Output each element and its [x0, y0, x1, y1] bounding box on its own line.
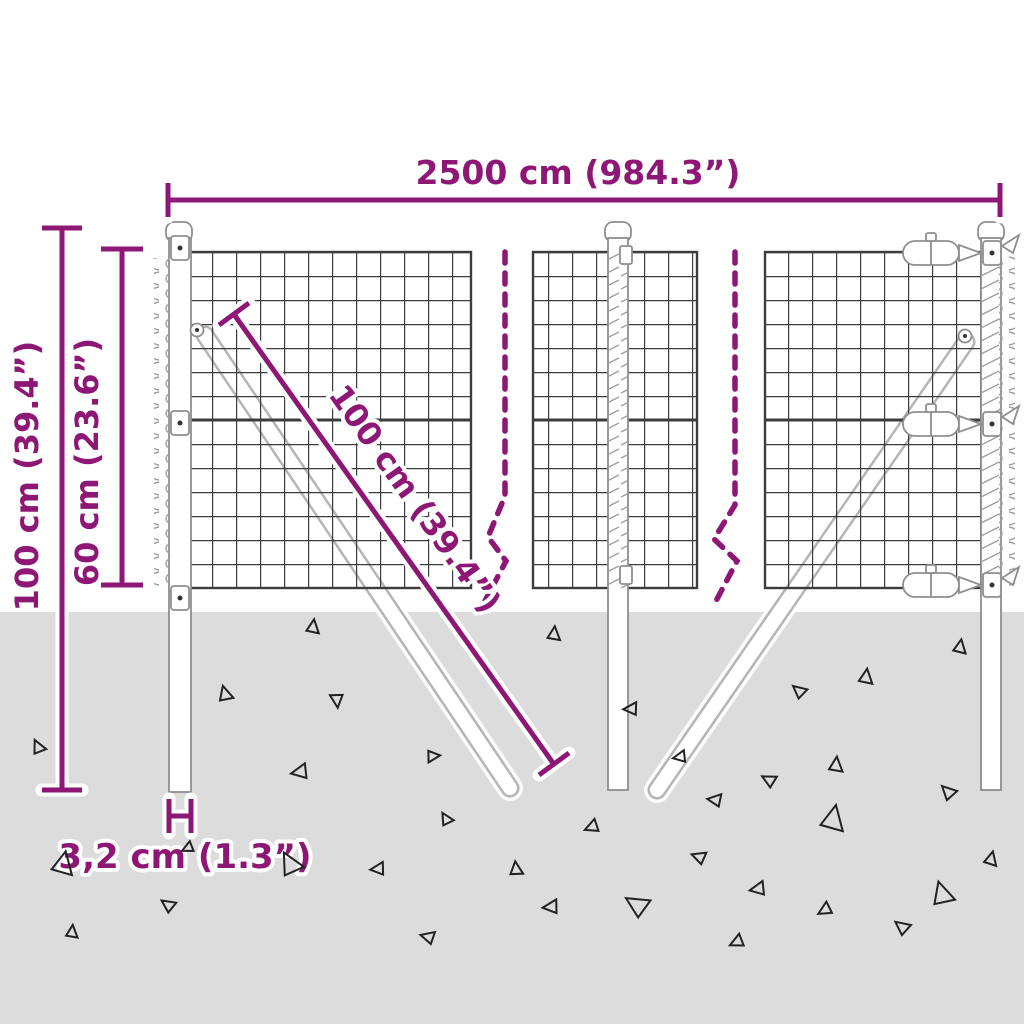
post-middle [605, 222, 632, 790]
hook-top [1002, 235, 1019, 253]
fence-dimension-diagram: 2500 cm (984.3”) 100 cm (39.4”) 60 cm (2… [0, 0, 1024, 1024]
total-width-label: 2500 cm (984.3”) [415, 153, 740, 192]
total-height-label: 100 cm (39.4”) [8, 341, 46, 612]
ground [0, 612, 1024, 1024]
post-thickness-label: 3,2 cm (1.3”) [58, 837, 311, 877]
mesh-height-label: 60 cm (23.6”) [68, 338, 106, 586]
